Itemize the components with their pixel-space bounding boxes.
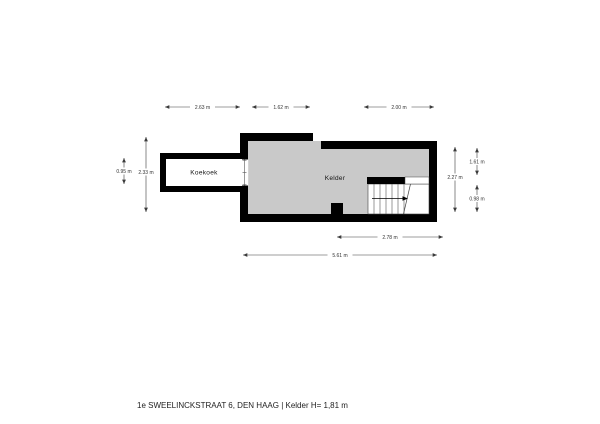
koekoek-room-label: Koekoek xyxy=(190,170,218,177)
stair-wall xyxy=(367,177,405,184)
dimension-label: 2.27 m xyxy=(447,175,462,181)
dimension-label: 1.62 m xyxy=(273,105,288,111)
dimension-bottom-outer: 5.61 m xyxy=(243,252,437,260)
dimension-label: 5.61 m xyxy=(332,253,347,259)
floorplan-page: Koekoek Kelder 2.63 m 1.62 m 2.00 m 0.95… xyxy=(0,0,600,424)
dimension-left-outer: 2.33 m xyxy=(135,137,158,212)
dimension-label: 2.33 m xyxy=(138,170,153,176)
dimension-label: 2.78 m xyxy=(382,235,397,241)
kelder-room-label: Kelder xyxy=(325,175,346,182)
floorplan-drawing: Koekoek Kelder 2.63 m 1.62 m 2.00 m 0.95… xyxy=(0,0,600,424)
dimension-right-bottom: 0.98 m xyxy=(466,185,489,212)
dimension-top-koekoek: 2.63 m xyxy=(165,104,240,112)
dimension-right-inner: 2.27 m xyxy=(444,147,467,212)
dimension-label: 0.98 m xyxy=(469,197,484,203)
dimension-label: 1.61 m xyxy=(469,160,484,166)
caption: 1e SWEELINCKSTRAAT 6, DEN HAAG | Kelder … xyxy=(137,401,348,410)
dimension-top-right: 2.00 m xyxy=(364,104,434,112)
dimension-label: 0.95 m xyxy=(116,169,131,175)
dimension-label: 2.63 m xyxy=(195,105,210,111)
staircase xyxy=(367,177,429,214)
wall-pier xyxy=(331,203,343,215)
dimension-left-inner: 0.95 m xyxy=(113,158,136,184)
dimension-right-top: 1.61 m xyxy=(466,148,489,175)
dimension-label: 2.00 m xyxy=(391,105,406,111)
window-symbol xyxy=(241,160,248,186)
dimension-top-middle: 1.62 m xyxy=(252,104,310,112)
dimension-bottom-inner: 2.78 m xyxy=(337,234,443,242)
stairwell xyxy=(368,184,429,214)
stair-opening xyxy=(405,177,429,184)
